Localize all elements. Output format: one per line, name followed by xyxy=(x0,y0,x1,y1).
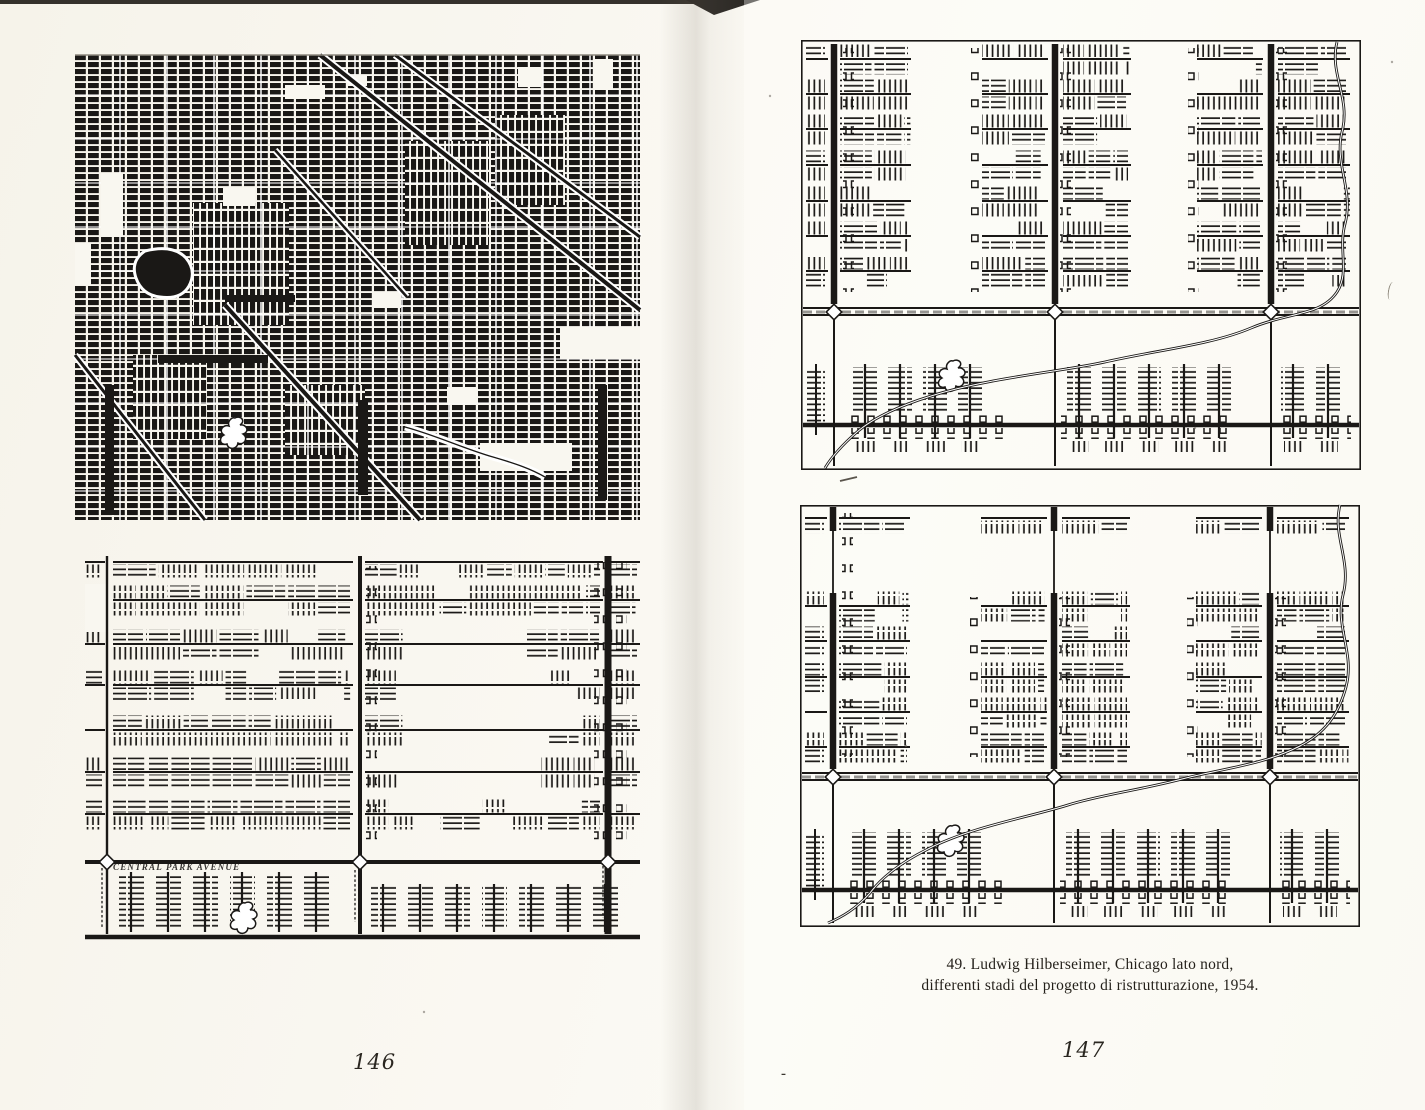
map-restructuring-stage-3 xyxy=(801,505,1359,926)
book-spread: CENTRAL PARK AVENUE 49. Ludwig Hilbersei… xyxy=(0,0,1425,1110)
stray-mark: - xyxy=(781,1066,786,1083)
central-park-avenue-label: CENTRAL PARK AVENUE xyxy=(113,862,240,872)
maps-canvas: CENTRAL PARK AVENUE xyxy=(0,0,1425,1110)
map-restructuring-stage-1 xyxy=(85,556,640,937)
map-street-labels: CENTRAL PARK AVENUE xyxy=(113,862,240,872)
map-chicago-existing-grid xyxy=(75,55,640,520)
caption-line-2: differenti stadi del progetto di ristrut… xyxy=(860,975,1320,996)
page-number-right: 147 xyxy=(1062,1038,1105,1062)
page-number-left: 146 xyxy=(353,1050,396,1074)
figure-caption: 49. Ludwig Hilberseimer, Chicago lato no… xyxy=(860,954,1320,997)
caption-line-1: 49. Ludwig Hilberseimer, Chicago lato no… xyxy=(860,954,1320,975)
map-restructuring-stage-2 xyxy=(802,41,1360,469)
